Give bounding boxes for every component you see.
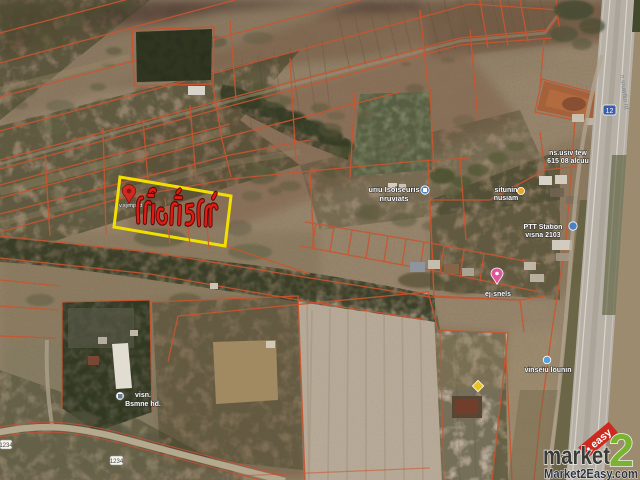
- svg-text:ej-snels: ej-snels: [485, 291, 511, 298]
- svg-text:PTT Station: PTT Station: [524, 224, 563, 231]
- svg-text:situnin: situnin: [495, 187, 518, 194]
- svg-text:ns.usiv tew: ns.usiv tew: [549, 150, 587, 157]
- svg-text:1234: 1234: [110, 459, 124, 465]
- svg-text:Bsmne hd.: Bsmne hd.: [125, 401, 161, 408]
- svg-text:615 08 alcuu: 615 08 alcuu: [547, 158, 589, 165]
- svg-text:12: 12: [606, 108, 614, 115]
- svg-text:market: market: [543, 442, 611, 470]
- svg-text:visna 2103: visna 2103: [525, 232, 561, 239]
- svg-text:uriu Isoiseuris: uriu Isoiseuris: [368, 185, 419, 194]
- svg-text:1234: 1234: [0, 443, 13, 449]
- svg-text:Market2Easy.com: Market2Easy.com: [544, 467, 638, 480]
- svg-text:nusiam: nusiam: [494, 195, 519, 202]
- svg-text:nruviats: nruviats: [379, 194, 408, 203]
- svg-text:vinseiu lounin: vinseiu lounin: [524, 367, 571, 374]
- svg-text:visn.: visn.: [135, 392, 151, 399]
